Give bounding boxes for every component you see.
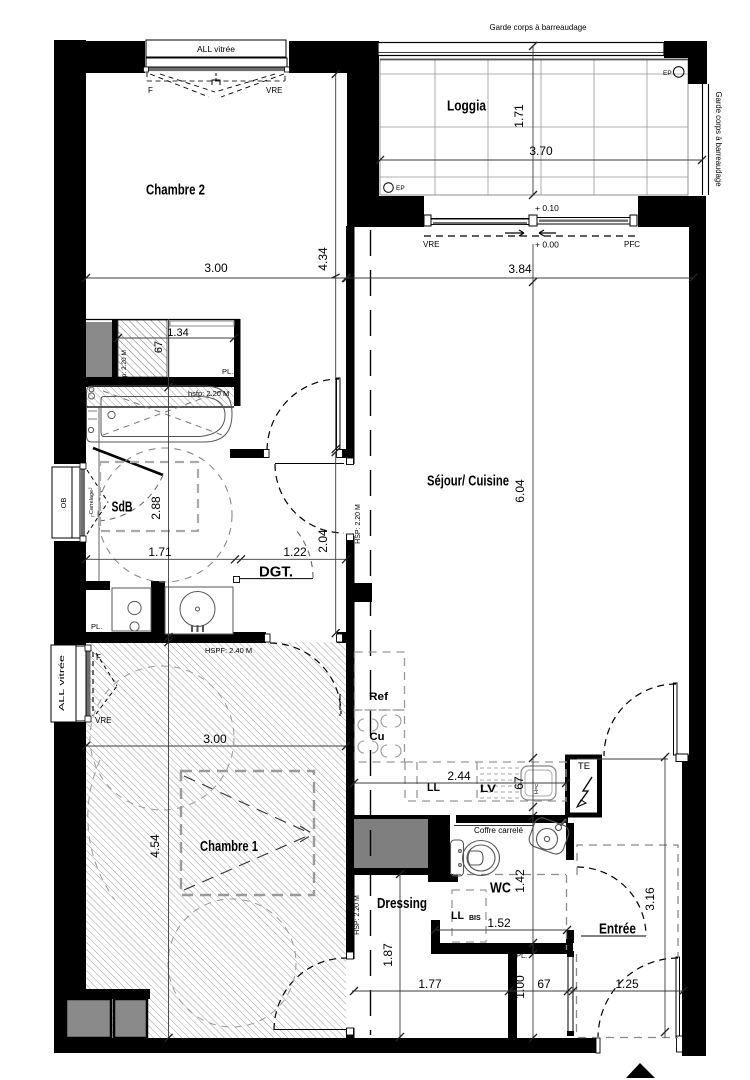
svg-text:2.88: 2.88 <box>149 496 163 520</box>
svg-text:1.22: 1.22 <box>283 545 307 559</box>
svg-text:6.04: 6.04 <box>513 479 527 503</box>
svg-text:OB: OB <box>59 498 68 509</box>
svg-text:1.71: 1.71 <box>148 545 172 559</box>
svg-text:1.25: 1.25 <box>615 977 639 991</box>
svg-text:1.77: 1.77 <box>418 977 442 991</box>
svg-text:1.52: 1.52 <box>487 916 511 930</box>
svg-text:1.71: 1.71 <box>512 104 526 128</box>
svg-text:Dressing: Dressing <box>377 896 427 912</box>
svg-text:LV: LV <box>480 783 497 795</box>
svg-text:┌Carrelage┘: ┌Carrelage┘ <box>88 486 95 518</box>
svg-text:ALL vitrée: ALL vitrée <box>57 655 66 711</box>
svg-text:3.00: 3.00 <box>204 261 228 275</box>
svg-text:TE: TE <box>578 761 590 772</box>
svg-text:VRE: VRE <box>423 240 439 249</box>
svg-text:2.44: 2.44 <box>447 769 471 783</box>
svg-text:PL.: PL. <box>516 951 527 960</box>
svg-text:Séjour/ Cuisine: Séjour/ Cuisine <box>427 474 509 490</box>
svg-text:PL.: PL. <box>91 622 102 631</box>
svg-text:HSP: 2.20 M: HSP: 2.20 M <box>354 895 361 935</box>
svg-text:3.70: 3.70 <box>529 144 553 158</box>
svg-text:1.00: 1.00 <box>513 975 527 999</box>
svg-text:1.34: 1.34 <box>167 327 188 339</box>
svg-text:SdB: SdB <box>112 500 133 516</box>
svg-text:ALL vitrée: ALL vitrée <box>197 44 235 54</box>
svg-text:F: F <box>96 653 101 662</box>
svg-text:DGT.: DGT. <box>259 565 293 581</box>
svg-text:Chambre 2: Chambre 2 <box>146 183 205 199</box>
svg-text:Garde corps à barreaudage: Garde corps à barreaudage <box>714 92 724 187</box>
svg-text:LL: LL <box>451 910 464 922</box>
svg-text:BIS: BIS <box>469 915 481 922</box>
svg-text:67: 67 <box>512 776 526 790</box>
svg-text:HSP: 2.20 M: HSP: 2.20 M <box>355 504 362 544</box>
svg-text:Chambre 1: Chambre 1 <box>200 839 258 855</box>
svg-text:LL: LL <box>427 782 440 794</box>
svg-text:Ref: Ref <box>369 691 388 703</box>
svg-text:+ 0.10: + 0.10 <box>535 203 559 213</box>
svg-text:hsfp: 2.20 M: hsfp: 2.20 M <box>188 389 229 398</box>
svg-text:H=c: H=c <box>534 784 540 794</box>
svg-text:3.00: 3.00 <box>203 732 227 746</box>
svg-text:HSPF: 2.40 M: HSPF: 2.40 M <box>205 646 252 655</box>
svg-text:Loggia: Loggia <box>447 99 487 115</box>
svg-text:2.04: 2.04 <box>316 529 330 553</box>
svg-text:3.16: 3.16 <box>643 887 657 911</box>
svg-text:VRE: VRE <box>95 716 111 725</box>
svg-text:67: 67 <box>153 341 165 353</box>
svg-text:3.84: 3.84 <box>508 262 532 276</box>
svg-text:+ 0.00: + 0.00 <box>535 240 559 250</box>
svg-text:F: F <box>148 86 153 95</box>
svg-text:hsfp: 2.20 M: hsfp: 2.20 M <box>121 350 128 386</box>
svg-text:Cu: Cu <box>370 731 385 743</box>
svg-text:PFC: PFC <box>624 240 640 249</box>
svg-text:EP: EP <box>396 185 405 192</box>
svg-text:WC: WC <box>490 880 511 897</box>
svg-text:Coffre carrelé: Coffre carrelé <box>474 826 524 835</box>
svg-text:PL.: PL. <box>222 367 233 376</box>
svg-text:Garde corps à barreaudage: Garde corps à barreaudage <box>490 22 587 32</box>
svg-text:EP: EP <box>663 70 672 77</box>
svg-text:1.42: 1.42 <box>513 869 527 893</box>
svg-text:67: 67 <box>537 977 551 991</box>
svg-text:VRE: VRE <box>266 86 282 95</box>
svg-text:1.87: 1.87 <box>381 943 395 967</box>
svg-text:4.34: 4.34 <box>316 247 330 271</box>
svg-text:4.54: 4.54 <box>148 834 162 858</box>
svg-text:Entrée: Entrée <box>599 922 636 938</box>
